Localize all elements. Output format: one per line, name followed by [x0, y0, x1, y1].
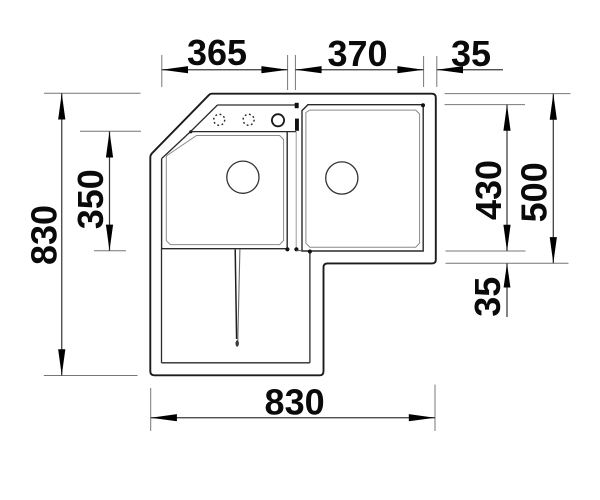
svg-text:35: 35: [451, 33, 491, 74]
svg-text:35: 35: [467, 277, 508, 317]
svg-text:500: 500: [513, 162, 554, 222]
svg-text:430: 430: [468, 160, 509, 220]
svg-text:830: 830: [265, 381, 325, 422]
svg-text:370: 370: [327, 33, 387, 74]
svg-text:350: 350: [70, 169, 111, 229]
svg-text:830: 830: [24, 205, 65, 265]
svg-text:365: 365: [187, 32, 247, 73]
